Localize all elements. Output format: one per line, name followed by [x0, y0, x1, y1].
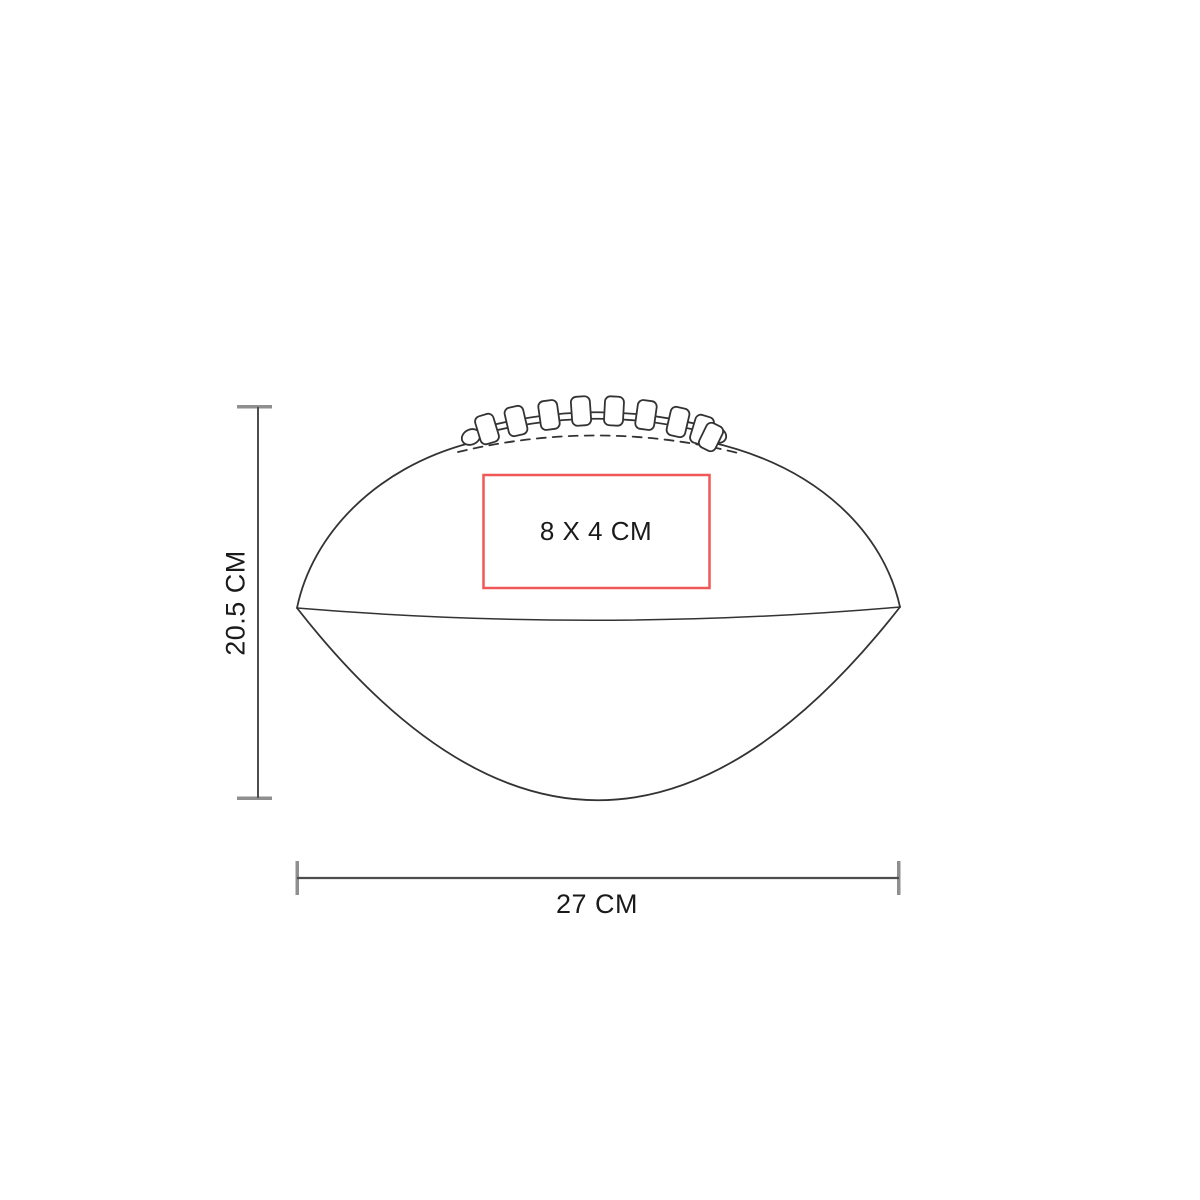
football-outline-top-left [297, 443, 470, 608]
print-area-size-label: 8 X 4 CM [483, 475, 709, 588]
lace-bead [604, 396, 624, 426]
lace-bead [571, 396, 592, 426]
lace-bead [538, 399, 561, 430]
football-outline-bottom [297, 607, 900, 800]
football-laces-icon [459, 396, 729, 453]
height-dimension-cap-bottom [237, 797, 272, 801]
lace-bead [503, 405, 528, 438]
football-seam-line [297, 607, 900, 620]
diagram-canvas: 8 X 4 CM 20.5 CM 27 CM [0, 0, 1200, 1200]
lace-bead [635, 399, 658, 430]
height-dimension-label: 20.5 CM [221, 550, 252, 656]
lace-bead [665, 406, 690, 439]
height-dimension-cap-top [237, 405, 272, 409]
football-outline-top-right [710, 442, 900, 607]
width-dimension-label: 27 CM [447, 889, 747, 920]
football-dimension-diagram [0, 0, 1200, 1200]
